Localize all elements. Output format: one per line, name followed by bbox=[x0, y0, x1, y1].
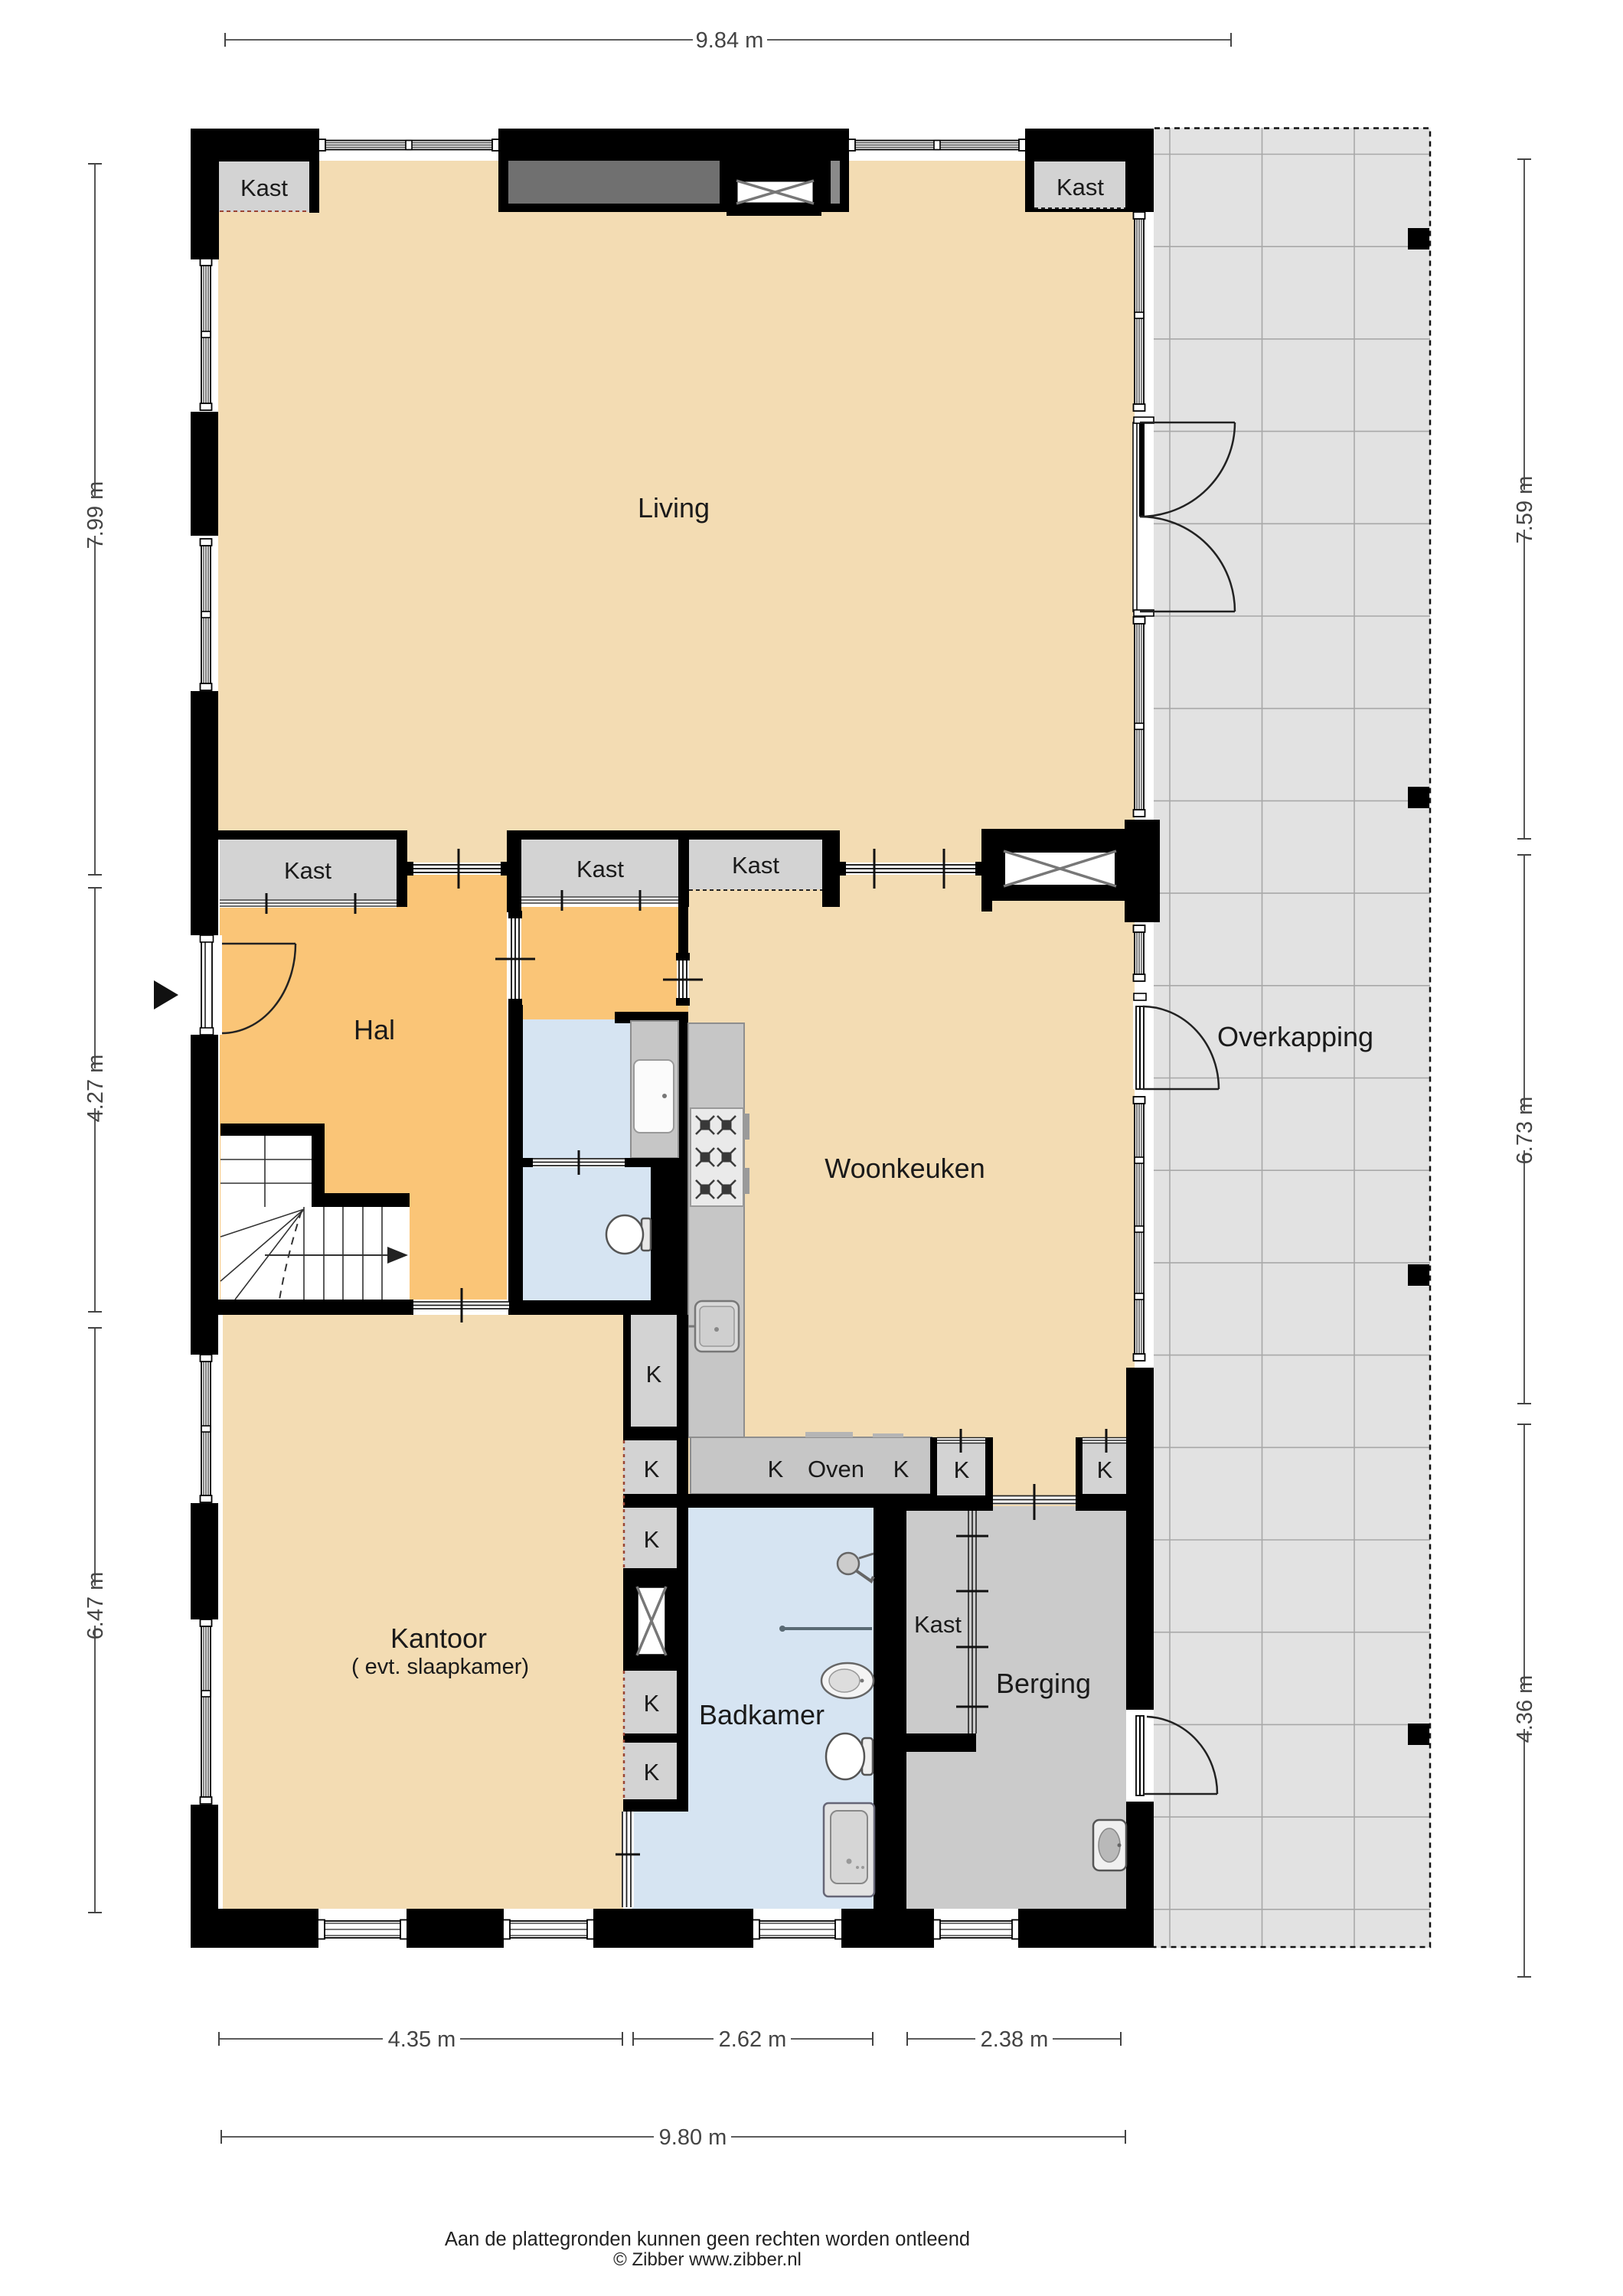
svg-text:K: K bbox=[1097, 1456, 1113, 1483]
svg-text:Kast: Kast bbox=[576, 856, 624, 882]
svg-text:( evt. slaapkamer): ( evt. slaapkamer) bbox=[351, 1655, 529, 1679]
svg-text:K: K bbox=[644, 1690, 660, 1717]
svg-text:6.47 m: 6.47 m bbox=[83, 1572, 108, 1640]
svg-text:4.36 m: 4.36 m bbox=[1513, 1675, 1537, 1743]
svg-text:4.35 m: 4.35 m bbox=[388, 2027, 456, 2052]
svg-text:Berging: Berging bbox=[996, 1668, 1091, 1699]
svg-text:Overkapping: Overkapping bbox=[1217, 1021, 1373, 1052]
svg-text:Woonkeuken: Woonkeuken bbox=[825, 1153, 985, 1184]
svg-text:9.80 m: 9.80 m bbox=[659, 2125, 727, 2150]
svg-text:4.27 m: 4.27 m bbox=[83, 1055, 108, 1123]
svg-text:K: K bbox=[644, 1759, 660, 1786]
svg-text:Kast: Kast bbox=[732, 852, 779, 879]
svg-text:K: K bbox=[644, 1526, 660, 1553]
svg-text:7.59 m: 7.59 m bbox=[1513, 476, 1537, 544]
svg-text:Kast: Kast bbox=[240, 174, 288, 201]
svg-text:K: K bbox=[646, 1361, 662, 1388]
svg-text:K: K bbox=[954, 1456, 970, 1483]
svg-text:6.73 m: 6.73 m bbox=[1513, 1097, 1537, 1165]
svg-text:Badkamer: Badkamer bbox=[699, 1699, 825, 1730]
svg-text:K: K bbox=[893, 1456, 909, 1482]
svg-text:© Zibber www.zibber.nl: © Zibber www.zibber.nl bbox=[613, 2249, 802, 2270]
svg-text:Kantoor: Kantoor bbox=[390, 1623, 487, 1654]
svg-text:K: K bbox=[644, 1456, 660, 1482]
svg-text:K: K bbox=[768, 1456, 784, 1482]
svg-text:9.84 m: 9.84 m bbox=[696, 28, 764, 53]
svg-text:Kast: Kast bbox=[914, 1611, 962, 1638]
svg-text:Aan de plattegronden kunnen ge: Aan de plattegronden kunnen geen rechten… bbox=[445, 2229, 970, 2250]
svg-text:Kast: Kast bbox=[284, 857, 331, 884]
svg-text:Living: Living bbox=[638, 492, 710, 523]
svg-text:Oven: Oven bbox=[808, 1456, 864, 1482]
svg-text:7.99 m: 7.99 m bbox=[83, 481, 108, 550]
svg-text:Hal: Hal bbox=[354, 1014, 395, 1045]
svg-text:2.38 m: 2.38 m bbox=[981, 2027, 1049, 2052]
svg-text:2.62 m: 2.62 m bbox=[719, 2027, 787, 2052]
svg-text:Kast: Kast bbox=[1056, 174, 1104, 201]
